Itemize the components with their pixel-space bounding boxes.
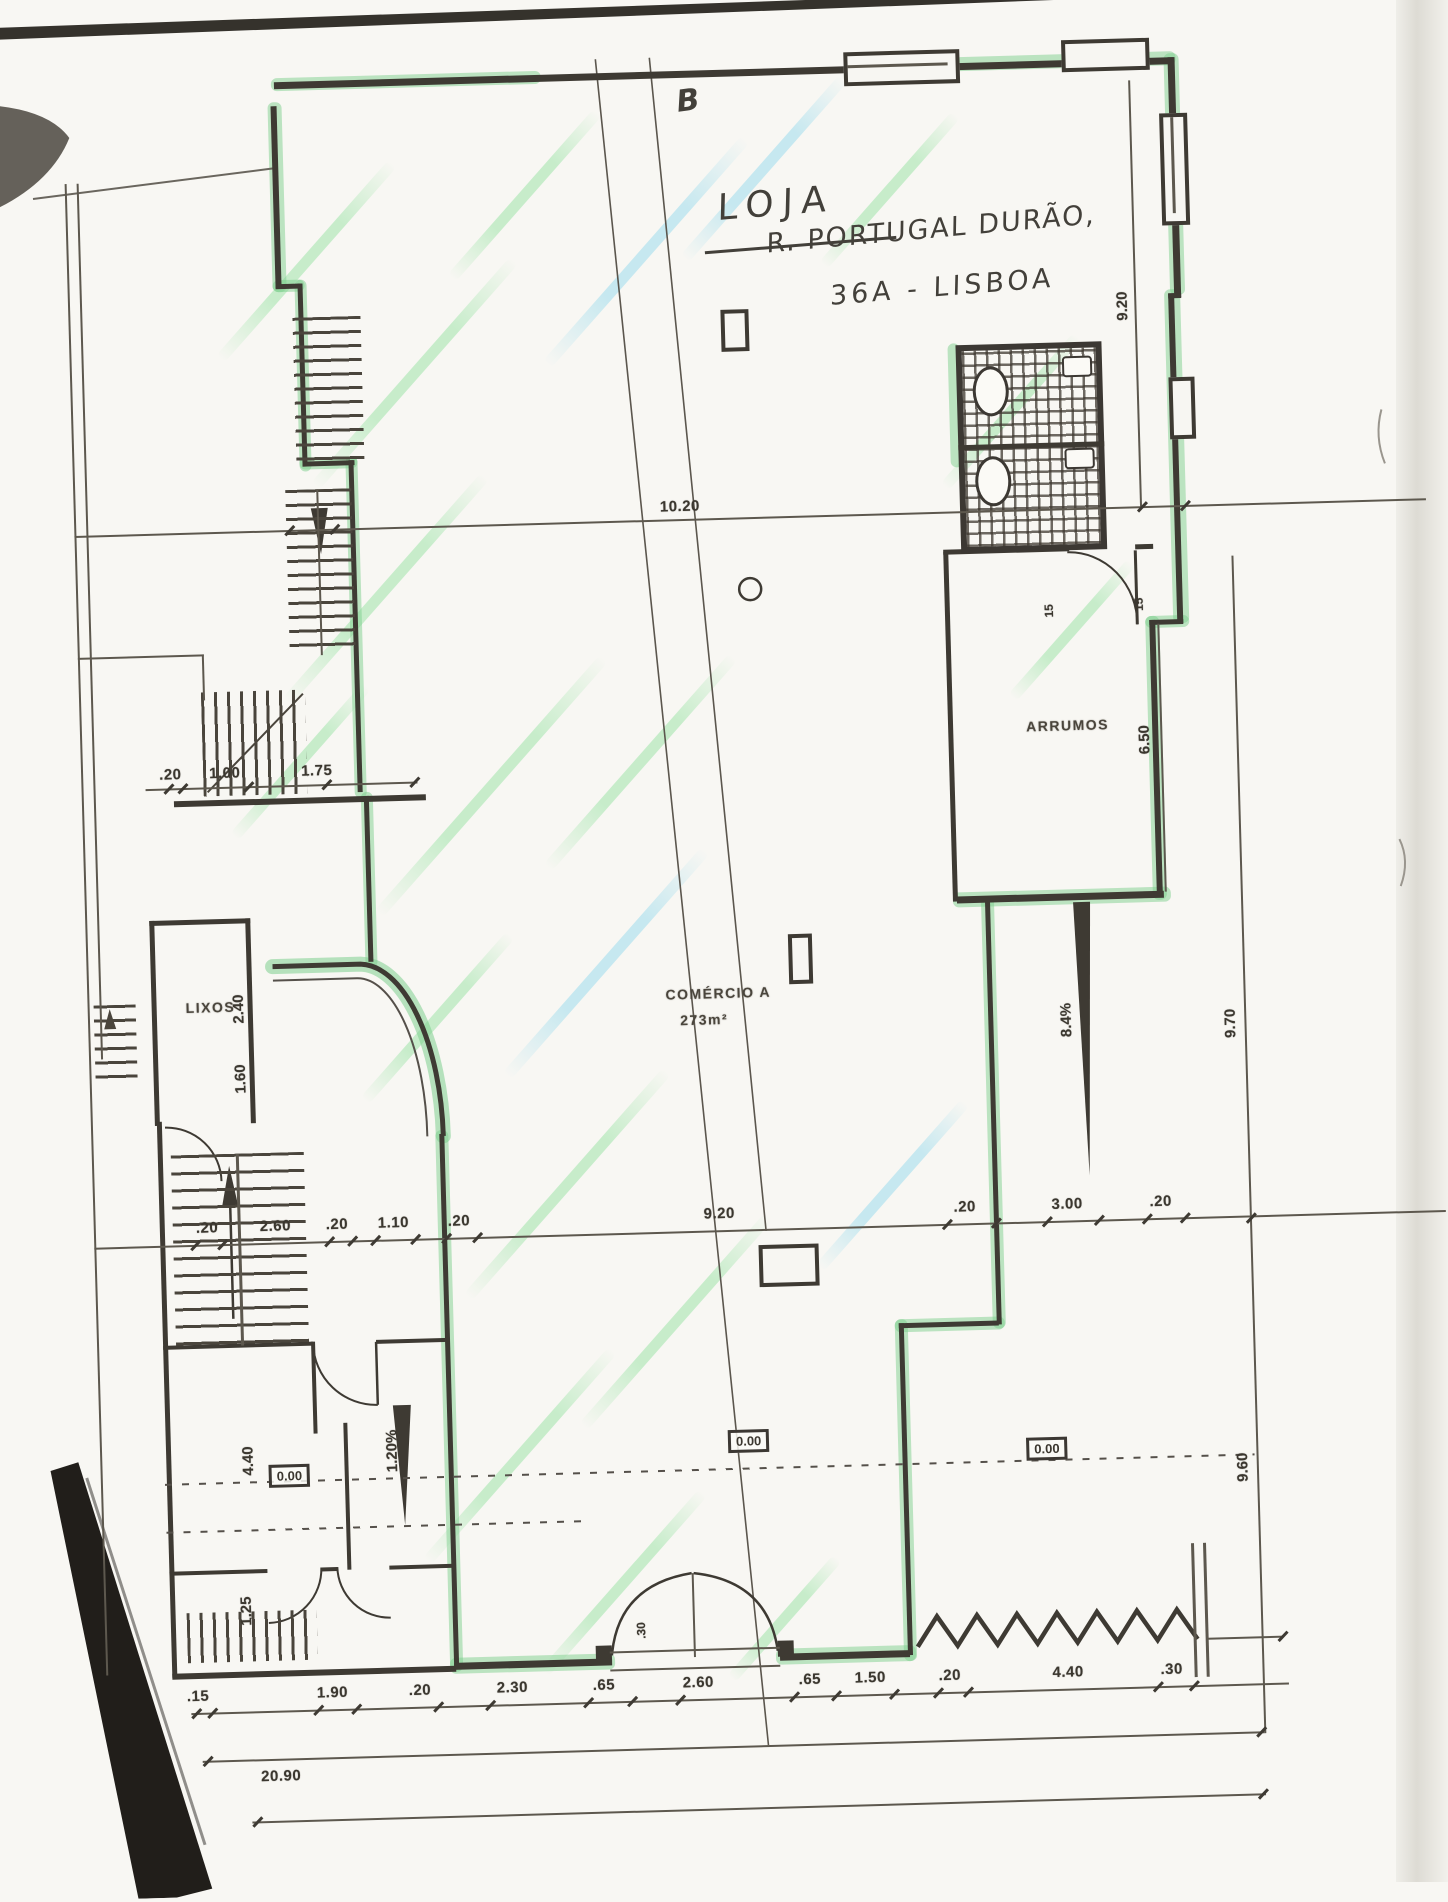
dim-label: .20 [953, 1199, 976, 1215]
window-top-2 [1061, 38, 1150, 72]
dim-label-vertical: 9.70 [1222, 995, 1239, 1051]
wall-storage-top-stub [1135, 544, 1153, 550]
dim-label: 4.40 [1052, 1664, 1084, 1680]
paper-curl-mark [1378, 409, 1385, 463]
dim-label: .15 [187, 1689, 210, 1705]
dim-label: 9.20 [703, 1206, 735, 1222]
stair-ladder-hatch [292, 316, 364, 464]
entrance-jamb [596, 1645, 612, 1661]
door-leaf [376, 1342, 378, 1405]
dim-label: .30 [1160, 1661, 1183, 1677]
circle-marker [739, 578, 762, 601]
section-marker: B [674, 82, 701, 120]
dim-label: 10.20 [660, 499, 700, 515]
door-jamb-mark: .30 [634, 1602, 648, 1658]
dim-label-total: 20.90 [261, 1768, 301, 1784]
ramp-slope-label-left: 1.20% [384, 1423, 401, 1479]
dim-label: .65 [593, 1677, 616, 1693]
paper-curl-mark [1399, 839, 1405, 886]
scan-top-edge [0, 0, 1216, 41]
dim-label-vertical: 1.60 [232, 1051, 249, 1107]
dim-label: 2.60 [260, 1218, 292, 1234]
dim-label-vertical: 6.50 [1136, 711, 1153, 767]
dim-label: 2.30 [497, 1680, 529, 1696]
level-box-left: 0.00 [268, 1464, 310, 1488]
dim-label: .65 [798, 1672, 821, 1688]
dim-label: 1.10 [378, 1215, 410, 1231]
dim-label-vertical: 4.40 [240, 1433, 257, 1489]
room-label-trash: LIXOS [185, 1000, 235, 1017]
column [788, 934, 813, 985]
dim-label-vertical: 9.20 [1114, 278, 1131, 334]
dim-label: .20 [409, 1682, 432, 1698]
entrance-door-arc-right [694, 1571, 778, 1653]
ramp-arrow-right [1073, 902, 1098, 1176]
room-label-shop-area: 273m² [680, 1012, 728, 1029]
dim-label: .20 [159, 767, 182, 783]
room-label-shop: COMÉRCIO A [665, 985, 771, 1003]
boundary-slant-line [32, 168, 275, 199]
wall-partition [321, 1567, 337, 1571]
curved-wall [273, 962, 444, 1141]
curved-wall-green [273, 962, 444, 1141]
dim-label-vertical: 9.60 [1235, 1439, 1252, 1495]
dim-label: .20 [1149, 1194, 1172, 1210]
column [759, 1243, 820, 1287]
dim-label: 1.50 [854, 1670, 886, 1686]
dim-label: .20 [326, 1217, 349, 1233]
level-box-right: 0.00 [1026, 1437, 1068, 1461]
dim-label-vertical: 1.25 [238, 1583, 255, 1639]
dim-label: 1.75 [301, 763, 333, 779]
entrance-jamb [778, 1640, 794, 1656]
entrance-door-arc-left [610, 1573, 694, 1655]
floor-plan: 10.20 .20 1.00 1.75 .20 2.60 .20 1.10 .2… [0, 0, 1448, 1902]
dim-label: 3.00 [1051, 1196, 1083, 1212]
section-line [649, 55, 766, 1233]
ramp-slope-label-right: 8.4% [1058, 992, 1075, 1048]
shutter-zigzag [917, 1609, 1198, 1647]
storage-door-arc [1067, 550, 1137, 626]
sink-fixture [1062, 356, 1093, 378]
dim-label: .20 [938, 1668, 961, 1684]
dim-label: 1.90 [317, 1685, 349, 1701]
door-arc [337, 1566, 390, 1619]
window-right-2 [1168, 377, 1196, 440]
sink-fixture [1064, 447, 1095, 469]
dim-label: 2.60 [682, 1675, 714, 1691]
dim-label: .20 [196, 1220, 219, 1236]
dim-label: 1.00 [209, 765, 241, 781]
dim-label: .20 [448, 1213, 471, 1229]
door-arc [313, 1342, 378, 1407]
room-label-storage: ARRUMOS [1026, 717, 1109, 735]
door-width-mark: 15 [1042, 583, 1056, 639]
column [720, 309, 749, 352]
door-width-mark: 15 [1132, 576, 1146, 632]
level-box-center: 0.00 [728, 1429, 770, 1453]
scan-slash-artifact [50, 1459, 212, 1901]
